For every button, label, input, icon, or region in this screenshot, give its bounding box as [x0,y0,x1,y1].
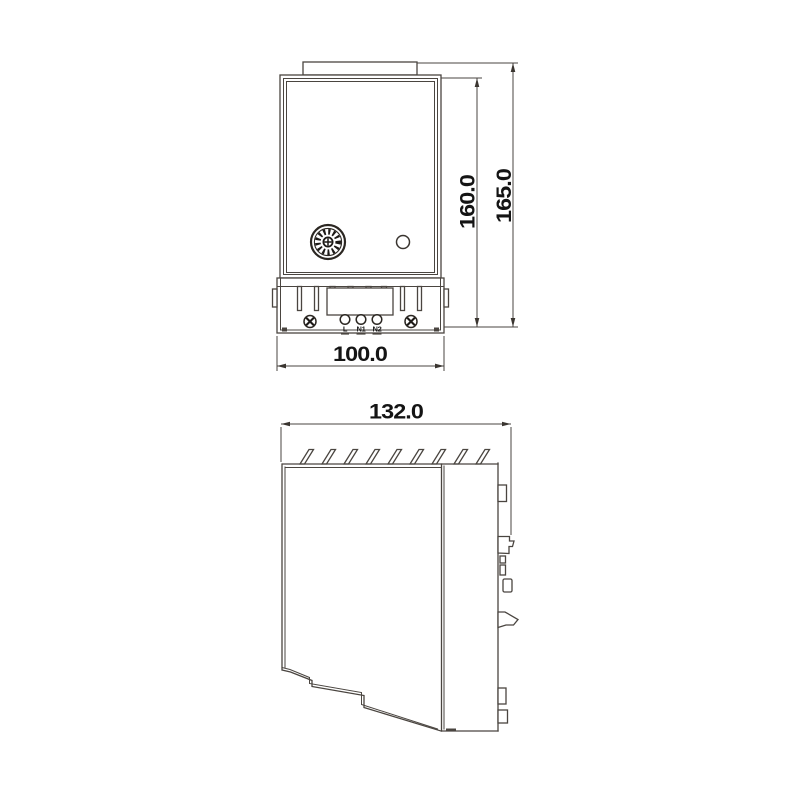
corner-foot [282,328,287,332]
vent-slot [401,287,405,311]
terminal-label-n2: N2 [373,325,382,334]
thermostat-dial-icon [311,225,345,259]
front-top-tab [303,62,417,75]
corner-foot [434,328,439,332]
screw-cross-icon-left [304,316,316,328]
side-view: 132.0 [281,401,518,732]
terminal-underline [357,333,366,335]
heatsink-fin-icon [476,450,490,465]
arrowhead-right [502,422,511,426]
right-side-notch [444,289,449,307]
dimension-total-height-value: 165.0 [493,169,516,223]
terminal-hole-icon [356,315,366,325]
din-rail-clips [498,485,518,723]
dimension-depth-value: 132.0 [369,401,423,424]
arrowhead-up [511,63,516,72]
bottom-slope-inner [282,668,438,730]
heatsink-fin-icon [366,450,380,465]
vent-slot [298,287,302,311]
front-body-outline [280,75,441,278]
side-body [282,463,498,732]
mounting-tab-bottom-2 [498,710,508,723]
indicator-hole-icon [397,236,410,249]
arrowhead-up [475,78,480,87]
heatsink-fin-icon [410,450,424,465]
arrowhead-left [277,364,286,369]
heatsink-fin-icon [344,450,358,465]
heatsink-fins [300,450,490,465]
device-dimension-drawing: L N1 N2 100.0 [0,0,800,800]
heatsink-fin-icon [454,450,468,465]
terminal-opening [327,288,393,315]
terminal-underline [373,333,382,335]
technical-drawing-canvas: L N1 N2 100.0 [0,0,800,800]
mounting-tab-top [498,485,507,502]
terminal-underline [341,333,349,335]
dimension-width: 100.0 [277,336,444,371]
heatsink-fin-icon [388,450,402,465]
arrowhead-down [511,318,516,327]
terminal-hole-icon [340,315,350,325]
heatsink-fin-icon [432,450,446,465]
screw-cross-icon-right [405,316,417,328]
mounting-tab-mid [503,579,512,592]
arrowhead-left [281,422,290,426]
terminal-label-l: L [343,325,348,334]
left-side-notch [273,289,278,307]
mounting-tab-bottom-1 [498,688,506,704]
terminal-n2: N2 [372,315,382,335]
front-view: L N1 N2 100.0 [273,62,519,371]
terminal-n1: N1 [356,315,366,335]
arrowhead-down [475,318,480,327]
dimension-width-value: 100.0 [333,343,387,366]
heatsink-fin-icon [322,450,336,465]
din-rail-clip-icon-upper [498,537,514,576]
arrowhead-right [435,364,444,369]
vent-slot [418,287,422,311]
terminal-section: L N1 N2 [273,278,449,335]
vent-slot [315,287,319,311]
heatsink-fin-icon [300,450,314,465]
terminal-hole-icon [372,315,382,325]
bottom-foot-mark [446,729,456,732]
din-rail-clip-icon-lower [498,612,518,628]
terminal-label-n1: N1 [357,325,366,334]
dimension-body-height-value: 160.0 [457,175,480,229]
